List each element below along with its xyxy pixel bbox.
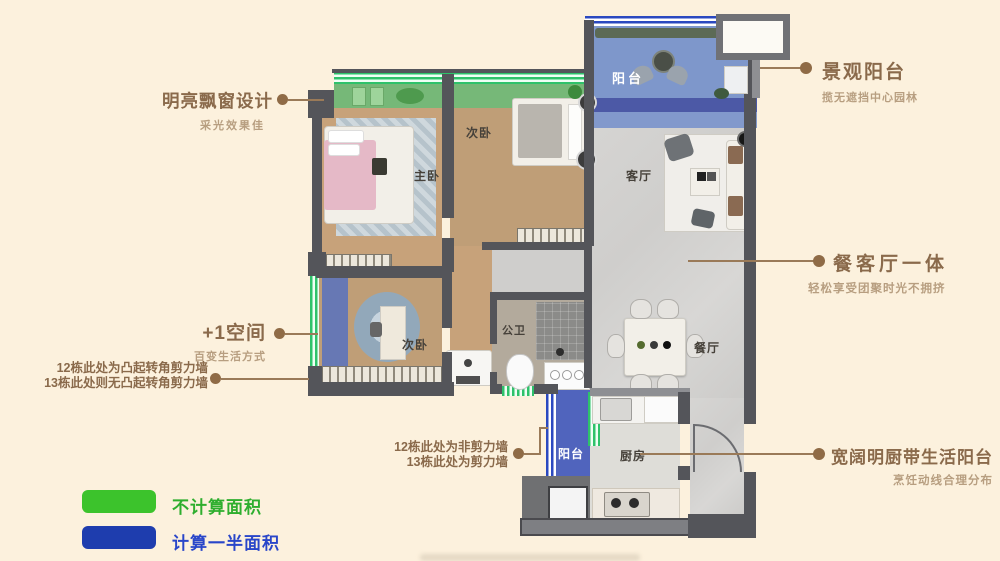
room-label-bathroom: 公卫 [502, 322, 526, 338]
bay-cushion-2 [370, 87, 384, 106]
wall [332, 69, 592, 73]
wall [744, 94, 756, 424]
kitchen-sink [600, 398, 632, 421]
callout-kitchen-balcony-line [640, 453, 814, 455]
wash-basin-faucet [464, 359, 472, 367]
legend-swatch-no-area [82, 490, 156, 513]
dining-chair-5 [607, 334, 625, 358]
sofa-cushion-2 [728, 196, 743, 216]
balcony-top-sill2 [585, 112, 757, 128]
balcony-plant-pot [714, 88, 729, 99]
note-shear-wall-balcony-line-h2 [539, 427, 548, 429]
bay-window-strip [334, 72, 590, 84]
dining-plate-3 [663, 341, 671, 349]
wall [316, 266, 452, 278]
dining-plate-1 [637, 341, 645, 349]
floor-plan-page: 阳台 次卧 主卧 客厅 公卫 餐厅 次卧 厨房 阳台 明亮飘窗设计 采光效果佳 … [0, 0, 1000, 561]
callout-bay-window-line [288, 99, 324, 101]
callout-dining-living-title: 餐客厅一体 [833, 249, 948, 276]
note-shear-wall-corner-line2: 13栋此处则无凸起转角剪力墙 [30, 376, 208, 391]
wall [678, 466, 690, 480]
balcony-bottom-floor [556, 390, 590, 478]
note-shear-wall-balcony-line2: 13栋此处为剪力墙 [382, 455, 508, 470]
callout-dining-living: 餐客厅一体 轻松享受团聚时光不拥挤 [833, 249, 948, 296]
note-shear-wall-corner-line1: 12栋此处为凸起转角剪力墙 [30, 361, 208, 376]
note-shear-wall-corner-line [221, 378, 309, 380]
legend-label-no-area: 不计算面积 [172, 493, 262, 518]
cropped-caption-remnant [420, 554, 640, 561]
callout-bay-window-subtitle: 采光效果佳 [110, 117, 273, 133]
balcony-top-sill [585, 98, 757, 112]
note-shear-wall-balcony-line-v [539, 427, 541, 455]
entry-door-leaf [693, 424, 695, 472]
wash-basin-base [456, 376, 480, 384]
duct-shaft-inner [548, 486, 588, 520]
callout-dining-living-dot [813, 255, 825, 267]
wall [312, 94, 322, 274]
burner-2 [629, 498, 639, 508]
callout-kitchen-balcony-subtitle: 烹饪动线合理分布 [831, 472, 993, 488]
plus-room-bookshelf [322, 366, 442, 383]
note-shear-wall-balcony: 12栋此处为非剪力墙 13栋此处为剪力墙 [382, 440, 508, 470]
wall [442, 238, 454, 272]
callout-dining-living-line [688, 260, 814, 262]
plus-room-half-area-band [322, 274, 348, 368]
second-plant-icon [568, 85, 582, 99]
sofa-cushion-1 [728, 146, 743, 164]
wall [678, 392, 690, 424]
wall [490, 300, 497, 344]
wall [534, 384, 558, 394]
room-label-balcony-top: 阳台 [612, 68, 644, 87]
plus-room-chair [370, 322, 382, 337]
wall [688, 514, 756, 538]
coffee-table-tray [697, 172, 706, 181]
callout-view-balcony-dot [800, 62, 812, 74]
wall [584, 246, 592, 388]
dining-chair-1 [630, 299, 652, 319]
wall-bottom [520, 518, 690, 536]
callout-view-balcony: 景观阳台 揽无遮挡中心园林 [822, 57, 918, 105]
callout-plus-space-dot [274, 328, 285, 339]
wall [442, 74, 454, 218]
room-label-kitchen: 厨房 [620, 447, 646, 464]
master-pillow-1 [328, 130, 364, 143]
wall [590, 388, 690, 396]
room-label-second-bedroom: 次卧 [466, 124, 492, 141]
wall [482, 242, 592, 250]
room-label-living-room: 客厅 [626, 167, 652, 184]
callout-kitchen-balcony-dot [813, 448, 825, 460]
callout-plus-space-line [285, 333, 318, 335]
callout-kitchen-balcony-title: 宽阔明厨带生活阳台 [831, 443, 993, 468]
callout-plus-space-title: +1空间 [130, 318, 266, 345]
legend-swatch-half-area [82, 526, 156, 549]
wall [490, 292, 592, 300]
note-shear-wall-corner-dot [210, 373, 221, 384]
note-shear-wall-balcony-dot [513, 448, 524, 459]
callout-view-balcony-title: 景观阳台 [822, 57, 918, 84]
room-label-master-bedroom: 主卧 [414, 167, 440, 184]
toilet [506, 354, 534, 390]
second-bed-blanket [518, 104, 562, 158]
callout-bay-window-title: 明亮飘窗设计 [110, 88, 273, 113]
bay-plant-icon [396, 88, 424, 104]
callout-kitchen-balcony: 宽阔明厨带生活阳台 烹饪动线合理分布 [831, 443, 993, 488]
room-label-balcony-bottom: 阳台 [558, 445, 584, 462]
callout-plus-space: +1空间 百变生活方式 [130, 318, 266, 364]
callout-dining-living-subtitle: 轻松享受团聚时光不拥挤 [808, 280, 948, 296]
vanity-sink-1 [550, 370, 560, 380]
legend-label-half-area: 计算一半面积 [172, 529, 280, 554]
vanity-sink-2 [562, 370, 572, 380]
note-shear-wall-corner: 12栋此处为凸起转角剪力墙 13栋此处则无凸起转角剪力墙 [30, 361, 208, 391]
callout-bay-window: 明亮飘窗设计 采光效果佳 [110, 88, 273, 133]
kitchen-fridge [644, 396, 680, 423]
room-label-plus-bedroom: 次卧 [402, 336, 428, 353]
bay-cushion-1 [352, 87, 366, 106]
burner-1 [611, 498, 621, 508]
ac-platform [716, 14, 790, 60]
callout-view-balcony-subtitle: 揽无遮挡中心园林 [822, 89, 918, 105]
floor-hall [492, 246, 590, 296]
dining-plate-2 [650, 341, 658, 349]
master-pillow-2 [328, 144, 360, 156]
wall [442, 352, 452, 386]
dining-chair-2 [657, 299, 679, 319]
callout-bay-window-dot [277, 94, 288, 105]
wall [490, 384, 502, 394]
vanity-sink-3 [574, 370, 584, 380]
wall [442, 272, 452, 328]
wall [584, 20, 594, 246]
shower-drain-icon [556, 348, 564, 356]
wall [308, 382, 454, 396]
master-side-table [372, 158, 387, 175]
room-label-dining-room: 餐厅 [694, 339, 720, 356]
coffee-table-board [707, 172, 716, 181]
callout-view-balcony-line [760, 67, 802, 69]
note-shear-wall-balcony-line1: 12栋此处为非剪力墙 [382, 440, 508, 455]
balcony-bottom-railing [546, 390, 556, 478]
